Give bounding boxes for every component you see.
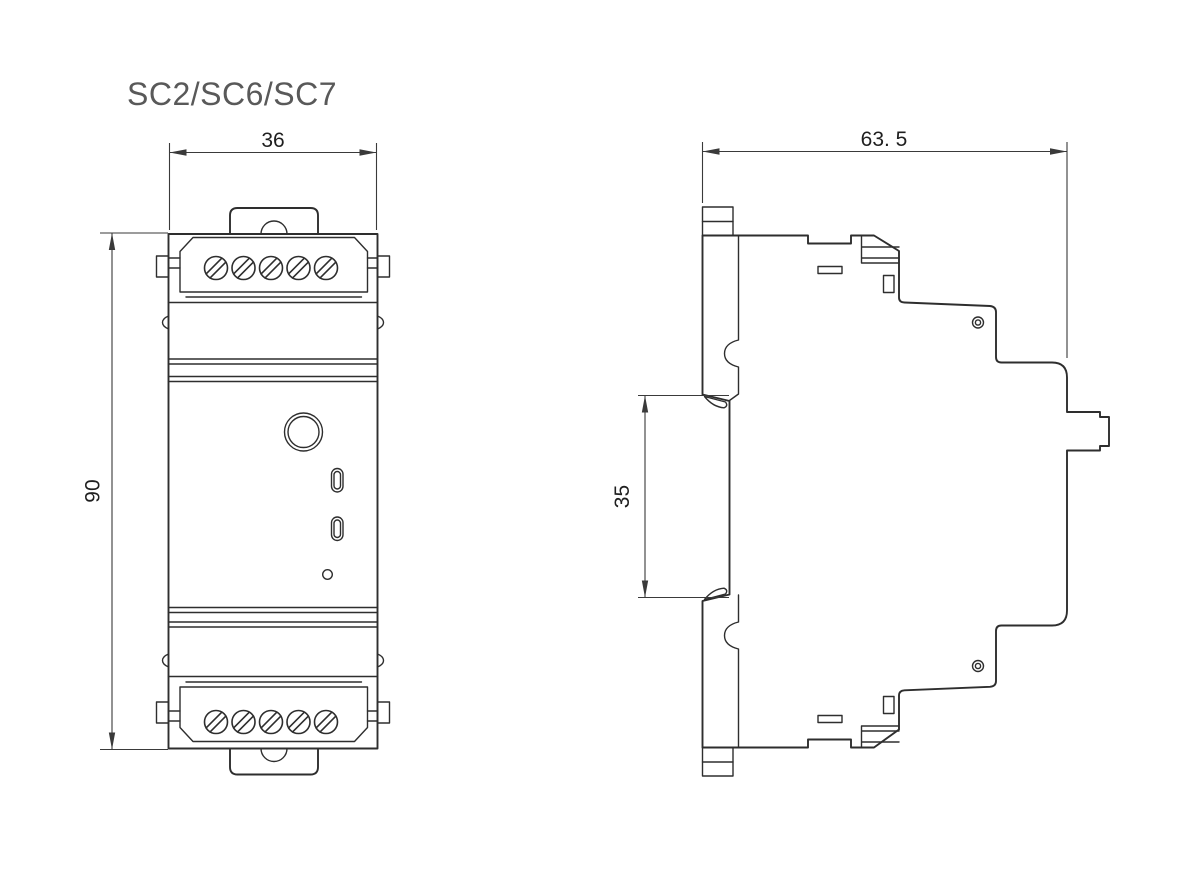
front-terminal-block-bottom: [157, 677, 390, 742]
side-inner-line-bottom: [725, 595, 739, 748]
housing-slots: [818, 267, 894, 723]
dimension-drawing: SC2/SC6/SC7: [0, 0, 1200, 873]
front-view: 36 90: [82, 129, 390, 775]
case-screws: [973, 317, 984, 672]
vent-slot: [818, 716, 842, 723]
front-vent-band-top: [169, 359, 378, 382]
arrowhead: [360, 149, 377, 155]
screw-terminal: [287, 257, 310, 280]
screw-terminal: [287, 711, 310, 734]
dim-height-90: 90: [82, 233, 169, 750]
screw-terminal: [315, 257, 338, 280]
terminal-ear-right: [378, 702, 390, 723]
arrowhead: [642, 396, 648, 413]
screw-terminal: [232, 257, 255, 280]
screw-terminal: [260, 257, 283, 280]
arrowhead: [642, 581, 648, 598]
bottom-tab-notch: [261, 749, 287, 762]
front-pinhole: [323, 570, 333, 580]
screw-terminal: [260, 711, 283, 734]
front-top-tab: [230, 208, 318, 234]
arrowhead: [109, 733, 115, 750]
technical-drawing-canvas: SC2/SC6/SC7: [0, 0, 1200, 873]
screw-terminal: [205, 711, 228, 734]
arrowhead: [109, 233, 115, 250]
dim-rail-35: 35: [611, 396, 729, 598]
drawing-title: SC2/SC6/SC7: [127, 76, 337, 112]
dim-width-label: 36: [261, 129, 284, 152]
arrowhead: [1050, 148, 1067, 154]
front-vent-band-bottom: [169, 608, 378, 628]
dim-height-label: 90: [82, 479, 105, 502]
front-terminal-block-top: [157, 238, 390, 303]
terminal-ear-left: [157, 256, 169, 277]
side-inner-line-top: [725, 236, 739, 401]
arrowhead: [703, 148, 720, 154]
front-button-inner: [288, 417, 319, 448]
side-profile-outline: [703, 236, 1110, 748]
dim-depth-label: 63. 5: [861, 128, 908, 151]
top-tab-notch: [261, 221, 287, 234]
front-body-outline: [169, 234, 378, 749]
terminal-ear-left: [157, 702, 169, 723]
vent-slot: [884, 276, 895, 293]
vent-slot: [818, 267, 842, 274]
dim-width-36: 36: [170, 129, 377, 230]
terminal-cover-seams-bottom: [862, 726, 900, 748]
front-bottom-tab: [230, 749, 318, 775]
screw-terminal: [205, 257, 228, 280]
terminal-screws-top: [205, 257, 338, 280]
case-screw-bottom: [973, 661, 984, 672]
arrowhead: [170, 149, 187, 155]
front-button-outer: [285, 413, 323, 451]
dim-rail-label: 35: [611, 485, 634, 508]
case-screw-top: [973, 317, 984, 328]
side-bottom-tab: [703, 748, 734, 777]
vent-slot: [884, 697, 895, 714]
side-view: 63. 5 35: [611, 128, 1109, 776]
screw-terminal: [315, 711, 338, 734]
front-panel: [285, 413, 344, 579]
side-top-tab: [703, 207, 734, 236]
terminal-ear-right: [378, 256, 390, 277]
led-indicator-2-inner: [334, 520, 341, 538]
screw-terminal: [232, 711, 255, 734]
front-side-bumps: [163, 316, 384, 667]
led-indicator-1-inner: [334, 472, 341, 490]
terminal-screws-bottom: [205, 711, 338, 734]
